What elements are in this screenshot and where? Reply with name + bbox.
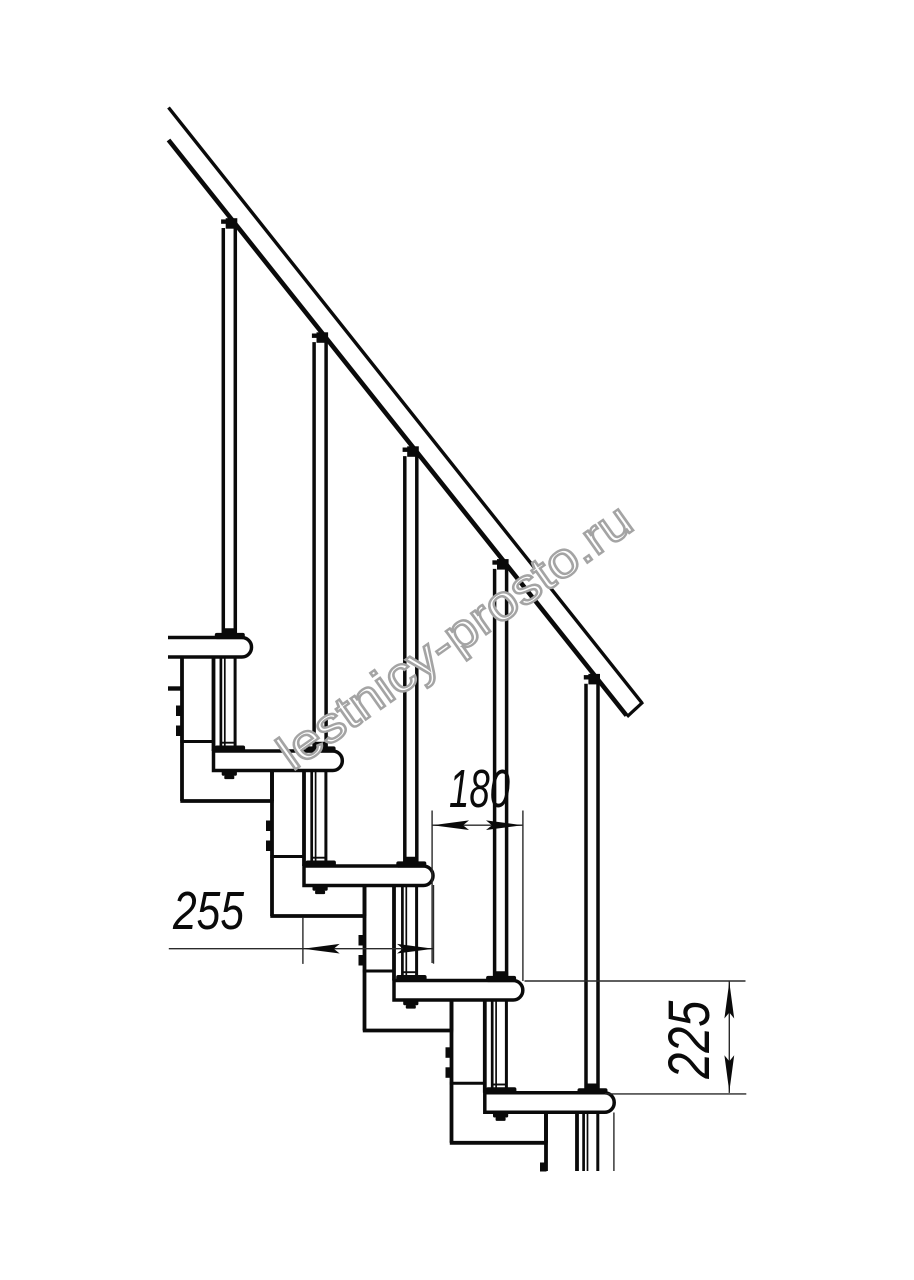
svg-text:225: 225 (657, 1000, 722, 1079)
svg-text:255: 255 (172, 881, 245, 941)
svg-text:180: 180 (449, 759, 510, 819)
